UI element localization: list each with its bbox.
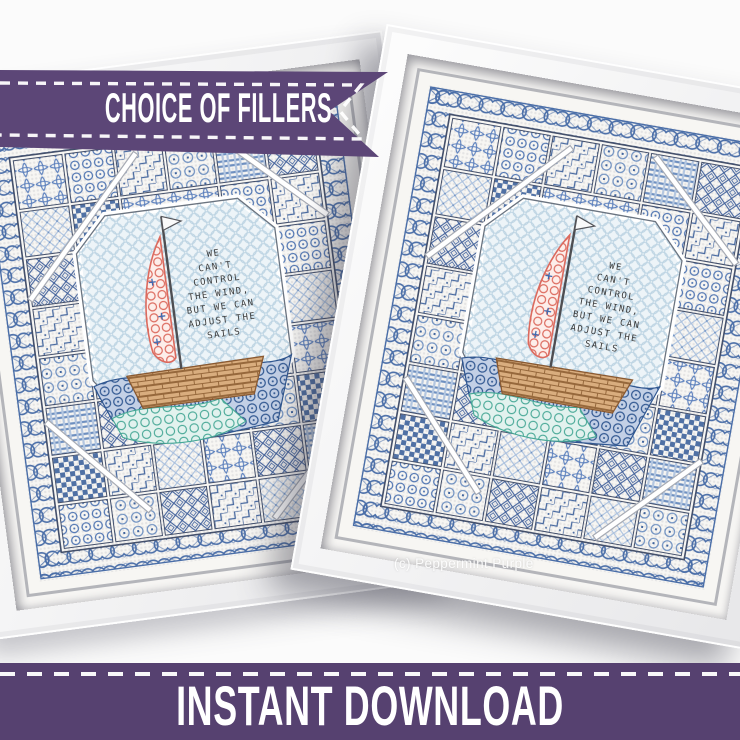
filler-patch [659,359,714,414]
filler-patch [284,270,338,323]
blackwork-sampler: WECAN'TCONTROLTHE WIND,BUT WE CANADJUST … [351,84,740,590]
filler-patch [444,118,501,175]
filler-patch [676,261,731,316]
ribbon-banner: CHOICE OF FILLERS [0,66,400,162]
filler-patch [154,439,206,490]
quote-line-1: WE [608,261,623,273]
filler-patch [59,499,113,548]
filler-patch [592,449,647,502]
filler-patch [668,310,723,365]
filler-patch [393,414,449,467]
filler-patch [33,303,88,356]
filler-patch [277,221,331,274]
filler-patch [385,461,441,512]
filler-patch [160,486,212,535]
filler-patch [634,505,689,556]
filler-patch [410,315,466,370]
filler-patch [209,480,261,529]
filler-patch [543,440,597,492]
filler-patch [693,162,740,219]
filler-patch [485,479,539,530]
bottom-banner-label: INSTANT DOWNLOAD [176,677,564,735]
ribbon-label-wrap: CHOICE OF FILLERS [0,86,348,130]
filler-patch [495,127,550,183]
filler-patch [104,445,156,496]
filler-patch [650,408,705,463]
bottom-label-wrap: INSTANT DOWNLOAD [0,677,740,735]
filler-patch [535,487,589,538]
copyright-watermark: (c) Peppermint Purple [394,556,534,571]
ribbon-label: CHOICE OF FILLERS [105,86,332,130]
filler-patch [584,496,639,547]
filler-patch [13,154,68,209]
filler-patch [203,432,255,483]
quote-line-1: WE [206,248,221,260]
filler-patch [436,470,490,521]
filler-patch [594,145,649,201]
embroidery-fabric-right: WECAN'TCONTROLTHE WIND,BUT WE CANADJUST … [351,84,740,590]
filler-patch [253,426,306,477]
product-mockup: WECAN'TCONTROLTHE WIND,BUT WE CANADJUST … [0,0,740,740]
filler-patch [52,452,106,503]
filler-patch [39,353,94,406]
bottom-banner: INSTANT DOWNLOAD [0,663,740,740]
